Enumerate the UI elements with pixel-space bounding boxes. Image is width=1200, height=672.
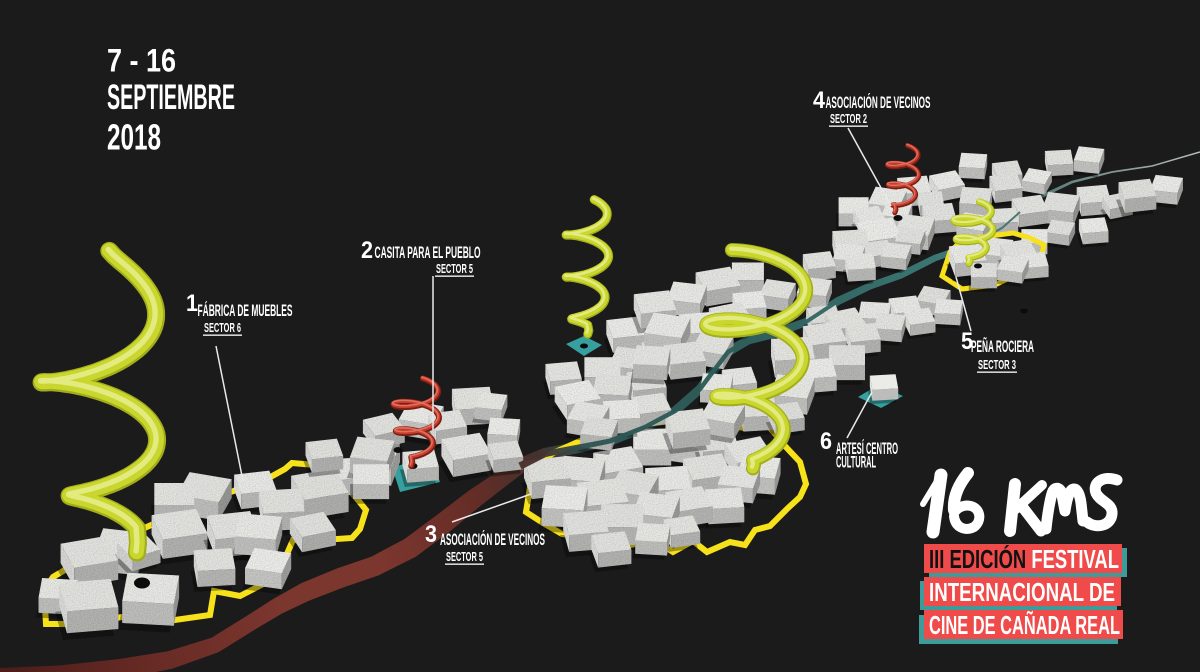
svg-text:ASOCIACIÓN DE VECINOS: ASOCIACIÓN DE VECINOS bbox=[440, 530, 545, 549]
svg-text:SECTOR 2: SECTOR 2 bbox=[830, 111, 867, 126]
svg-text:PEÑA ROCIERA: PEÑA ROCIERA bbox=[971, 336, 1034, 356]
svg-text:SECTOR 6: SECTOR 6 bbox=[204, 320, 241, 335]
svg-text:INTERNACIONAL DE: INTERNACIONAL DE bbox=[929, 577, 1115, 607]
svg-text:CULTURAL: CULTURAL bbox=[836, 454, 876, 472]
svg-text:2018: 2018 bbox=[107, 117, 161, 158]
svg-text:SEPTIEMBRE: SEPTIEMBRE bbox=[107, 78, 235, 117]
svg-text:SECTOR 5: SECTOR 5 bbox=[446, 549, 483, 564]
svg-text:2: 2 bbox=[361, 237, 373, 264]
svg-text:7 - 16: 7 - 16 bbox=[107, 43, 176, 79]
svg-text:CINE DE CAÑADA REAL: CINE DE CAÑADA REAL bbox=[929, 610, 1120, 640]
svg-text:CASITA PARA EL PUEBLO: CASITA PARA EL PUEBLO bbox=[375, 244, 481, 262]
svg-text:SECTOR 5: SECTOR 5 bbox=[436, 261, 473, 276]
svg-text:ASOCIACIÓN DE VECINOS: ASOCIACIÓN DE VECINOS bbox=[826, 93, 931, 112]
svg-text:3: 3 bbox=[425, 521, 437, 548]
svg-text:III EDICIÓN FESTIVAL: III EDICIÓN FESTIVAL bbox=[929, 544, 1119, 574]
svg-text:FÁBRICA DE MUEBLES: FÁBRICA DE MUEBLES bbox=[198, 301, 293, 320]
svg-text:4: 4 bbox=[813, 87, 826, 114]
svg-text:6: 6 bbox=[820, 428, 832, 455]
svg-text:SECTOR 3: SECTOR 3 bbox=[978, 357, 1016, 372]
svg-text:1: 1 bbox=[186, 290, 198, 317]
